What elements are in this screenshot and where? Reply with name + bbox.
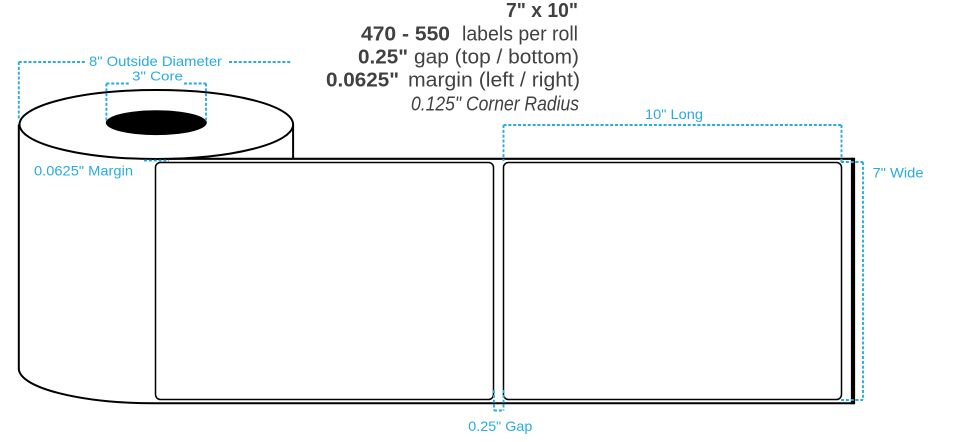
svg-text:0.25" Gap: 0.25" Gap bbox=[468, 418, 532, 434]
svg-text:margin (left / right): margin (left / right) bbox=[408, 70, 580, 92]
svg-text:10" Long: 10" Long bbox=[645, 106, 703, 122]
svg-text:7" x 10": 7" x 10" bbox=[506, 0, 578, 22]
svg-text:0.0625" Margin: 0.0625" Margin bbox=[34, 163, 133, 179]
svg-text:0.25": 0.25" bbox=[358, 47, 408, 69]
svg-text:labels per roll: labels per roll bbox=[462, 24, 578, 46]
svg-text:470 - 550: 470 - 550 bbox=[361, 24, 450, 46]
svg-text:gap (top / bottom): gap (top / bottom) bbox=[414, 47, 579, 69]
svg-text:7" Wide: 7" Wide bbox=[873, 164, 924, 180]
svg-text:3" Core: 3" Core bbox=[132, 69, 183, 84]
svg-text:0.0625": 0.0625" bbox=[326, 70, 399, 92]
svg-text:8" Outside Diameter: 8" Outside Diameter bbox=[89, 53, 222, 69]
svg-text:0.125" Corner Radius: 0.125" Corner Radius bbox=[411, 94, 579, 116]
